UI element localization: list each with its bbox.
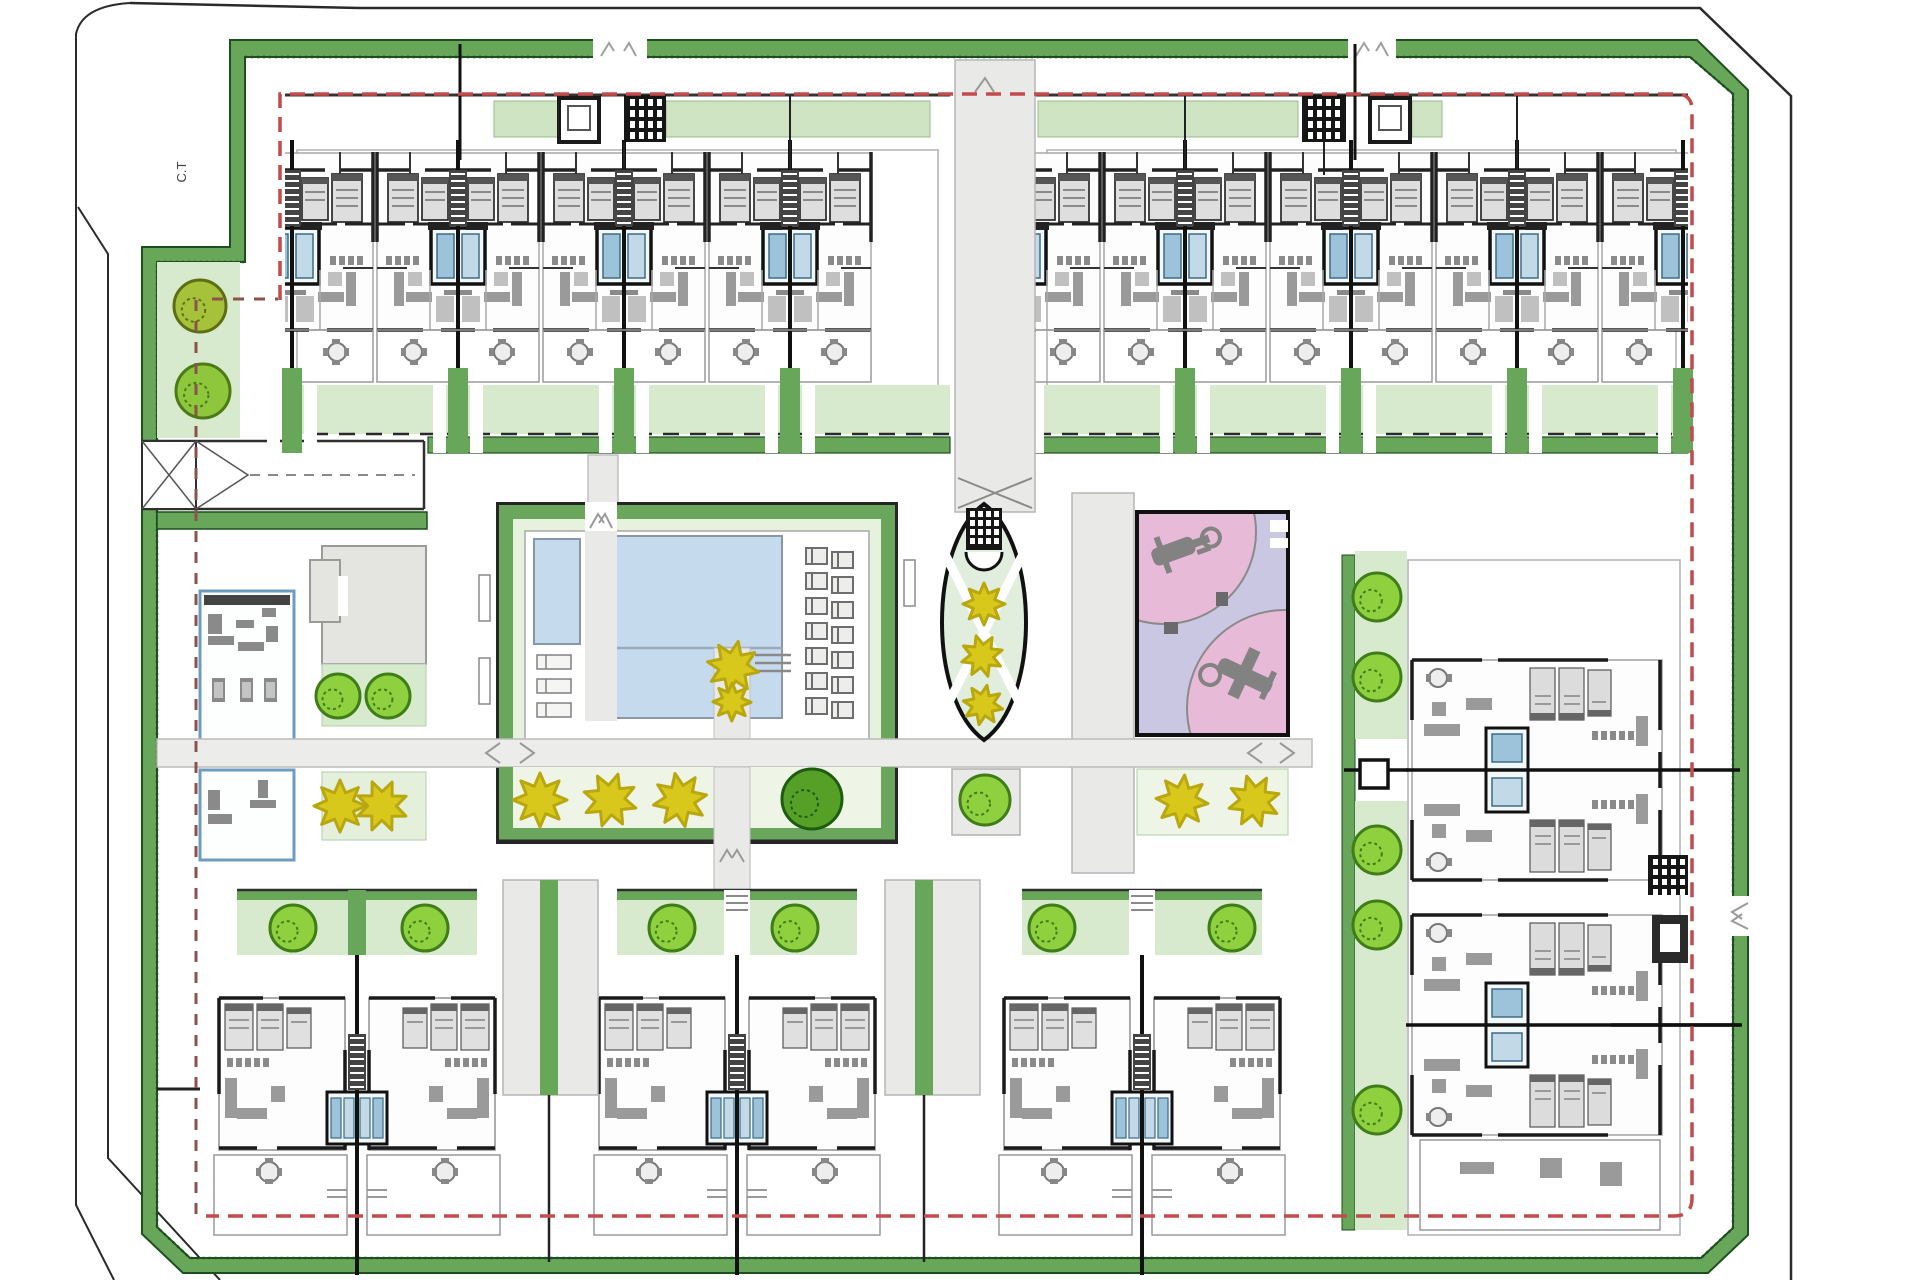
svg-text:C.T: C.T xyxy=(174,161,189,182)
